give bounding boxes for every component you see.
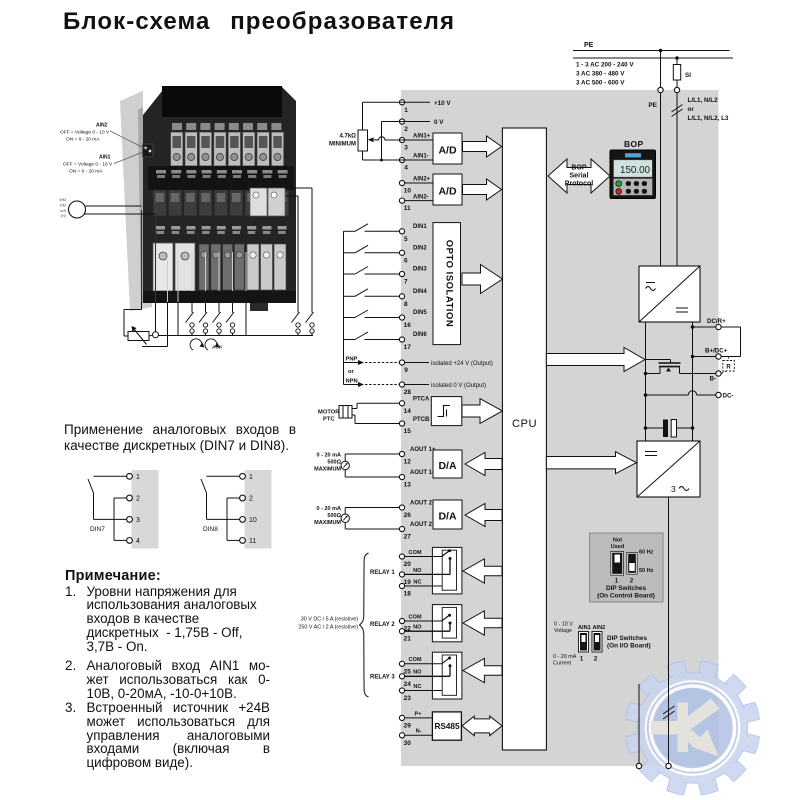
svg-text:NPN: NPN	[346, 378, 358, 384]
svg-text:A/D: A/D	[438, 145, 457, 157]
svg-text:2: 2	[404, 126, 408, 133]
svg-text:RS485: RS485	[434, 722, 459, 731]
svg-text:ACK: ACK	[212, 345, 223, 351]
svg-text:DM: DM	[60, 202, 66, 207]
svg-text:9: 9	[404, 367, 408, 374]
svg-text:16: 16	[404, 322, 412, 329]
svg-text:OFF = Voltage 0 - 16 V: OFF = Voltage 0 - 16 V	[63, 162, 113, 168]
svg-text:AIN2+: AIN2+	[413, 177, 431, 183]
svg-text:L/L1, N/L2: L/L1, N/L2	[688, 97, 719, 104]
svg-text:30 V DC / 5 A (resistive): 30 V DC / 5 A (resistive)	[301, 617, 358, 623]
svg-text:7: 7	[404, 279, 408, 286]
svg-text:20: 20	[404, 561, 412, 568]
svg-text:2: 2	[249, 496, 253, 503]
svg-text:AOUT 2-: AOUT 2-	[410, 522, 434, 528]
svg-text:MAXIMUM: MAXIMUM	[314, 520, 341, 526]
svg-text:Protocol: Protocol	[565, 181, 593, 188]
svg-text:+10 V: +10 V	[434, 100, 451, 107]
svg-text:DIN5: DIN5	[413, 310, 427, 316]
svg-text:CPU: CPU	[512, 418, 537, 430]
svg-text:12: 12	[404, 459, 412, 466]
svg-text:COM: COM	[408, 657, 421, 663]
svg-text:mA: mA	[60, 208, 66, 213]
svg-text:NO: NO	[413, 568, 422, 574]
svg-text:D/A: D/A	[438, 511, 457, 523]
svg-text:DIN1: DIN1	[413, 224, 427, 230]
svg-text:ON = 0 - 20 mA: ON = 0 - 20 mA	[69, 169, 103, 175]
svg-text:B+/DC+: B+/DC+	[705, 348, 728, 355]
svg-text:AIN2: AIN2	[593, 625, 606, 631]
svg-text:AIN1+: AIN1+	[413, 134, 431, 140]
svg-text:MM: MM	[59, 197, 66, 202]
svg-text:2: 2	[136, 496, 140, 503]
svg-text:150.00: 150.00	[620, 165, 650, 176]
svg-text:PNP: PNP	[346, 356, 358, 362]
svg-text:25: 25	[404, 668, 412, 675]
svg-text:R: R	[726, 364, 731, 370]
svg-text:PTC: PTC	[323, 417, 335, 423]
svg-text:Used: Used	[611, 544, 624, 550]
svg-text:11: 11	[404, 205, 411, 212]
svg-text:(On I/O Board): (On I/O Board)	[607, 643, 651, 650]
svg-text:NC: NC	[413, 579, 421, 585]
svg-text:60 Hz: 60 Hz	[639, 550, 654, 556]
svg-text:1: 1	[404, 107, 408, 114]
svg-text:RELAY 2: RELAY 2	[370, 622, 395, 628]
svg-text:3 AC 380 - 480 V: 3 AC 380 - 480 V	[576, 71, 625, 78]
svg-text:23: 23	[404, 695, 412, 702]
svg-text:5: 5	[404, 236, 408, 243]
svg-text:AIN1: AIN1	[578, 625, 591, 631]
svg-text:DIN4: DIN4	[413, 289, 427, 295]
svg-text:ON = 0 - 20 mA: ON = 0 - 20 mA	[66, 137, 100, 143]
svg-text:BOP: BOP	[624, 139, 644, 149]
svg-text:0 - 20 mA: 0 - 20 mA	[317, 453, 341, 459]
svg-text:0 V: 0 V	[434, 119, 444, 126]
svg-text:D/A: D/A	[438, 460, 457, 472]
svg-text:PTCA: PTCA	[413, 397, 430, 403]
svg-text:DC-: DC-	[723, 393, 734, 400]
svg-text:isolated +24 V (Output): isolated +24 V (Output)	[431, 361, 493, 367]
svg-text:N-: N-	[416, 729, 422, 735]
svg-text:3 AC 500 - 600 V: 3 AC 500 - 600 V	[576, 80, 625, 87]
svg-text:DC/R+: DC/R+	[707, 318, 726, 325]
svg-text:B-: B-	[709, 376, 716, 383]
svg-text:3: 3	[671, 484, 676, 494]
svg-text:1 - 3 AC 200 - 240 V: 1 - 3 AC 200 - 240 V	[576, 62, 634, 69]
svg-text:AOUT 2+: AOUT 2+	[410, 501, 436, 507]
svg-text:AOUT 1+: AOUT 1+	[410, 447, 436, 453]
svg-text:50 Hz: 50 Hz	[639, 568, 654, 574]
svg-text:250 V AC / 2 A (resistive): 250 V AC / 2 A (resistive)	[298, 625, 358, 631]
svg-text:Current: Current	[553, 661, 571, 667]
svg-text:(On Control Board): (On Control Board)	[597, 593, 655, 600]
svg-text:AIN1: AIN1	[99, 155, 111, 161]
svg-text:DIN7: DIN7	[90, 526, 105, 533]
svg-text:14: 14	[404, 408, 412, 415]
svg-text:10: 10	[249, 517, 257, 524]
svg-text:28: 28	[404, 389, 412, 396]
svg-text:Not: Not	[613, 538, 622, 544]
svg-text:RELAY 1: RELAY 1	[370, 570, 395, 576]
svg-text:6: 6	[404, 257, 408, 264]
svg-text:NO: NO	[413, 625, 422, 631]
svg-text:1: 1	[136, 474, 140, 481]
svg-text:L/L1, N/L2, L3: L/L1, N/L2, L3	[688, 115, 729, 122]
svg-text:24: 24	[404, 681, 412, 688]
svg-text:AIN1-: AIN1-	[413, 154, 429, 160]
svg-text:Serial: Serial	[569, 173, 588, 180]
svg-text:500Ω: 500Ω	[327, 513, 341, 519]
svg-text:15: 15	[404, 428, 412, 435]
svg-text:PE: PE	[584, 42, 594, 49]
svg-text:OFF = Voltage 0 - 10 V: OFF = Voltage 0 - 10 V	[60, 130, 110, 136]
svg-text:0 - 20 mA: 0 - 20 mA	[553, 654, 577, 660]
svg-text:11: 11	[249, 538, 256, 545]
svg-text:4: 4	[404, 165, 408, 172]
svg-text:DIN8: DIN8	[203, 526, 218, 533]
svg-text:4.7kΩ: 4.7kΩ	[340, 134, 357, 140]
svg-text:3: 3	[404, 145, 408, 152]
svg-text:MOTOR: MOTOR	[318, 410, 340, 416]
svg-text:26: 26	[404, 512, 412, 519]
svg-text:or: or	[688, 106, 695, 113]
svg-text:30: 30	[404, 740, 412, 747]
svg-text:A/D: A/D	[438, 186, 457, 198]
svg-text:NO: NO	[413, 670, 422, 676]
svg-text:3: 3	[136, 517, 140, 524]
svg-text:8: 8	[404, 301, 408, 308]
svg-text:(H): (H)	[60, 213, 66, 218]
svg-text:13: 13	[404, 482, 412, 489]
svg-text:PE: PE	[648, 102, 657, 109]
svg-text:DIP Switches: DIP Switches	[606, 585, 646, 592]
svg-text:10: 10	[404, 188, 412, 195]
svg-text:DIN6: DIN6	[413, 332, 427, 338]
svg-text:PTCB: PTCB	[413, 417, 430, 423]
svg-text:0 - 10 V: 0 - 10 V	[554, 622, 573, 628]
svg-text:RELAY 3: RELAY 3	[370, 675, 395, 681]
svg-text:DIN3: DIN3	[413, 267, 427, 273]
svg-text:21: 21	[404, 636, 412, 643]
svg-text:Voltage: Voltage	[554, 628, 572, 634]
svg-text:500Ω: 500Ω	[327, 460, 341, 466]
svg-text:0 - 20 mA: 0 - 20 mA	[317, 506, 341, 512]
svg-text:DIP Switches: DIP Switches	[607, 635, 647, 642]
svg-text:AIN2-: AIN2-	[413, 194, 429, 200]
svg-text:NC: NC	[413, 684, 421, 690]
svg-text:27: 27	[404, 534, 412, 541]
svg-text:COM: COM	[408, 614, 421, 620]
svg-text:MINIMUM: MINIMUM	[329, 142, 356, 148]
svg-text:SI: SI	[685, 72, 691, 79]
svg-text:isolated 0 V (Output): isolated 0 V (Output)	[431, 383, 486, 389]
svg-text:or: or	[348, 369, 355, 375]
svg-text:COM: COM	[408, 550, 421, 556]
svg-text:1: 1	[249, 474, 253, 481]
svg-text:AIN2: AIN2	[96, 123, 108, 129]
svg-text:18: 18	[404, 591, 412, 598]
svg-text:MAXIMUM: MAXIMUM	[314, 467, 341, 473]
svg-text:17: 17	[404, 344, 412, 351]
svg-text:OPTO ISOLATION: OPTO ISOLATION	[444, 240, 455, 327]
svg-text:DIN2: DIN2	[413, 246, 427, 252]
svg-text:4: 4	[136, 538, 140, 545]
svg-text:BOP: BOP	[571, 165, 587, 172]
svg-text:29: 29	[404, 722, 412, 729]
svg-text:AOUT 1-: AOUT 1-	[410, 470, 434, 476]
svg-text:P+: P+	[415, 711, 423, 717]
